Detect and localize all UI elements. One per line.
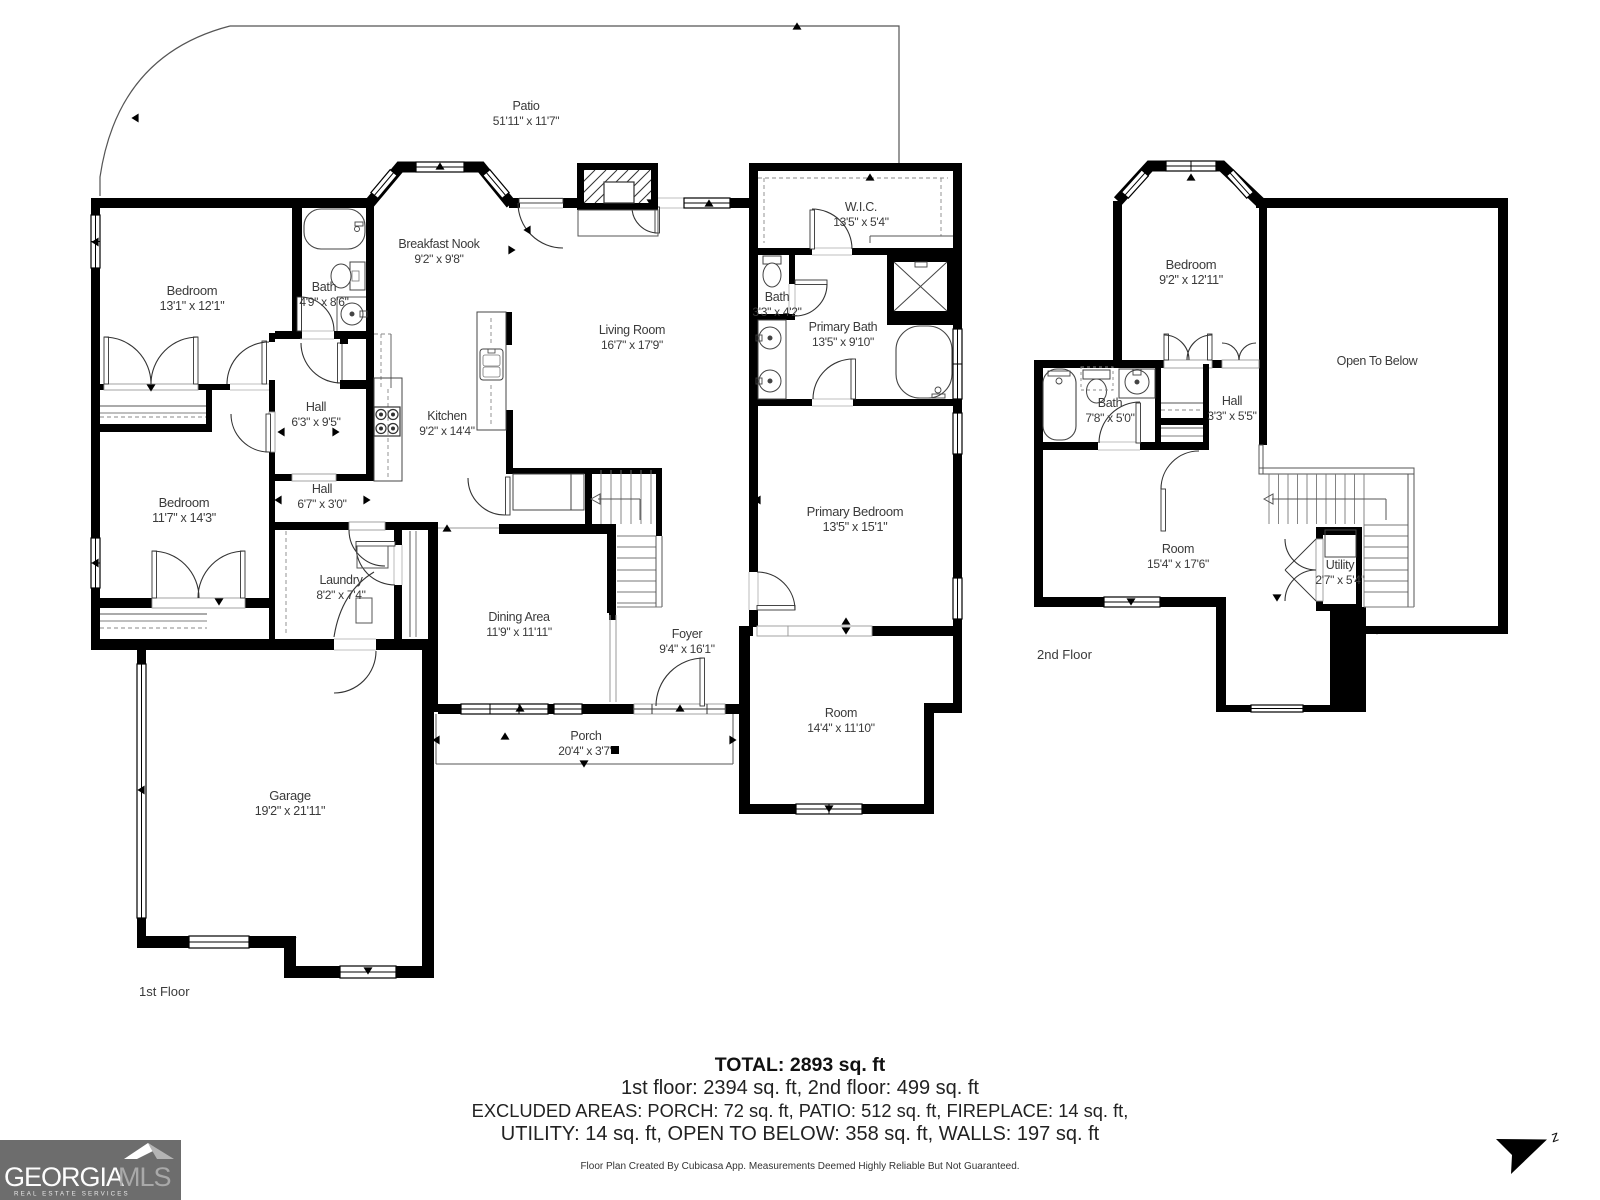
svg-text:1st floor: 2394 sq. ft, 2nd fl: 1st floor: 2394 sq. ft, 2nd floor: 499 s… [621,1077,979,1099]
svg-text:11'7" x 14'3": 11'7" x 14'3" [152,511,216,525]
svg-text:Bedroom: Bedroom [167,283,218,298]
svg-text:Hall: Hall [306,400,326,414]
svg-text:Porch: Porch [570,729,602,743]
svg-text:15'4" x 17'6": 15'4" x 17'6" [1147,557,1209,571]
svg-text:Hall: Hall [312,482,332,496]
svg-text:3'3" x 5'5": 3'3" x 5'5" [1207,409,1256,423]
svg-text:Open To Below: Open To Below [1337,354,1419,368]
svg-text:Room: Room [1162,542,1194,556]
svg-text:MLS: MLS [118,1162,171,1192]
svg-text:Bath: Bath [312,280,337,294]
svg-text:6'3" x 9'5": 6'3" x 9'5" [291,415,340,429]
svg-text:Primary Bath: Primary Bath [809,320,878,334]
svg-text:Living Room: Living Room [599,323,665,337]
svg-text:Garage: Garage [269,788,311,803]
svg-text:13'5" x 15'1": 13'5" x 15'1" [823,520,888,534]
svg-text:9'4" x 16'1": 9'4" x 16'1" [659,642,715,656]
svg-text:Kitchen: Kitchen [427,409,467,423]
svg-text:GEORGIA: GEORGIA [4,1162,124,1192]
svg-text:Utility: Utility [1326,558,1356,572]
svg-text:13'1" x 12'1": 13'1" x 12'1" [160,299,225,313]
svg-text:13'5" x 9'10": 13'5" x 9'10" [812,335,874,349]
svg-text:6'7" x 3'0": 6'7" x 3'0" [297,497,346,511]
svg-text:9'2" x 14'4": 9'2" x 14'4" [419,424,475,438]
svg-text:EXCLUDED AREAS: PORCH: 72 sq.: EXCLUDED AREAS: PORCH: 72 sq. ft, PATIO:… [472,1100,1129,1121]
svg-text:Breakfast Nook: Breakfast Nook [398,237,480,251]
svg-text:Patio: Patio [513,99,540,113]
svg-text:1st Floor: 1st Floor [139,984,190,999]
svg-text:20'4" x 3'7": 20'4" x 3'7" [558,744,614,758]
svg-text:Primary Bedroom: Primary Bedroom [807,504,904,519]
svg-text:Bath: Bath [765,290,790,304]
svg-text:Floor Plan Created By Cubicasa: Floor Plan Created By Cubicasa App. Meas… [580,1161,1019,1172]
svg-text:Foyer: Foyer [672,627,703,641]
svg-text:8'2" x 7'4": 8'2" x 7'4" [316,588,365,602]
svg-text:Room: Room [825,706,857,720]
svg-text:9'2" x 9'8": 9'2" x 9'8" [414,252,463,266]
svg-text:Bath: Bath [1098,396,1123,410]
svg-text:2'7" x 5'4": 2'7" x 5'4" [1315,573,1364,587]
svg-text:19'2" x 21'11": 19'2" x 21'11" [255,804,325,818]
svg-text:REAL ESTATE SERVICES: REAL ESTATE SERVICES [14,1191,130,1198]
svg-text:7'8" x 5'0": 7'8" x 5'0" [1085,411,1134,425]
svg-text:4'9" x 8'6": 4'9" x 8'6" [299,295,348,309]
svg-text:TOTAL: 2893 sq. ft: TOTAL: 2893 sq. ft [715,1054,886,1076]
svg-text:W.I.C.: W.I.C. [845,200,877,214]
svg-text:Dining Area: Dining Area [488,610,550,624]
svg-text:Hall: Hall [1222,394,1242,408]
svg-text:9'2" x 12'11": 9'2" x 12'11" [1159,273,1223,287]
svg-text:Laundry: Laundry [319,573,363,587]
svg-text:Bedroom: Bedroom [1166,257,1217,272]
svg-text:Bedroom: Bedroom [159,495,210,510]
svg-text:14'4" x 11'10": 14'4" x 11'10" [807,721,874,735]
svg-text:16'7" x 17'9": 16'7" x 17'9" [601,338,663,352]
svg-text:51'11" x 11'7": 51'11" x 11'7" [493,114,560,128]
svg-text:UTILITY: 14 sq. ft, OPEN TO BE: UTILITY: 14 sq. ft, OPEN TO BELOW: 358 s… [501,1123,1100,1145]
svg-text:11'9" x 11'11": 11'9" x 11'11" [486,625,552,639]
svg-text:2nd Floor: 2nd Floor [1037,647,1093,662]
svg-text:13'5" x 5'4": 13'5" x 5'4" [833,215,889,229]
svg-text:3'3" x 4'2": 3'3" x 4'2" [752,305,801,319]
